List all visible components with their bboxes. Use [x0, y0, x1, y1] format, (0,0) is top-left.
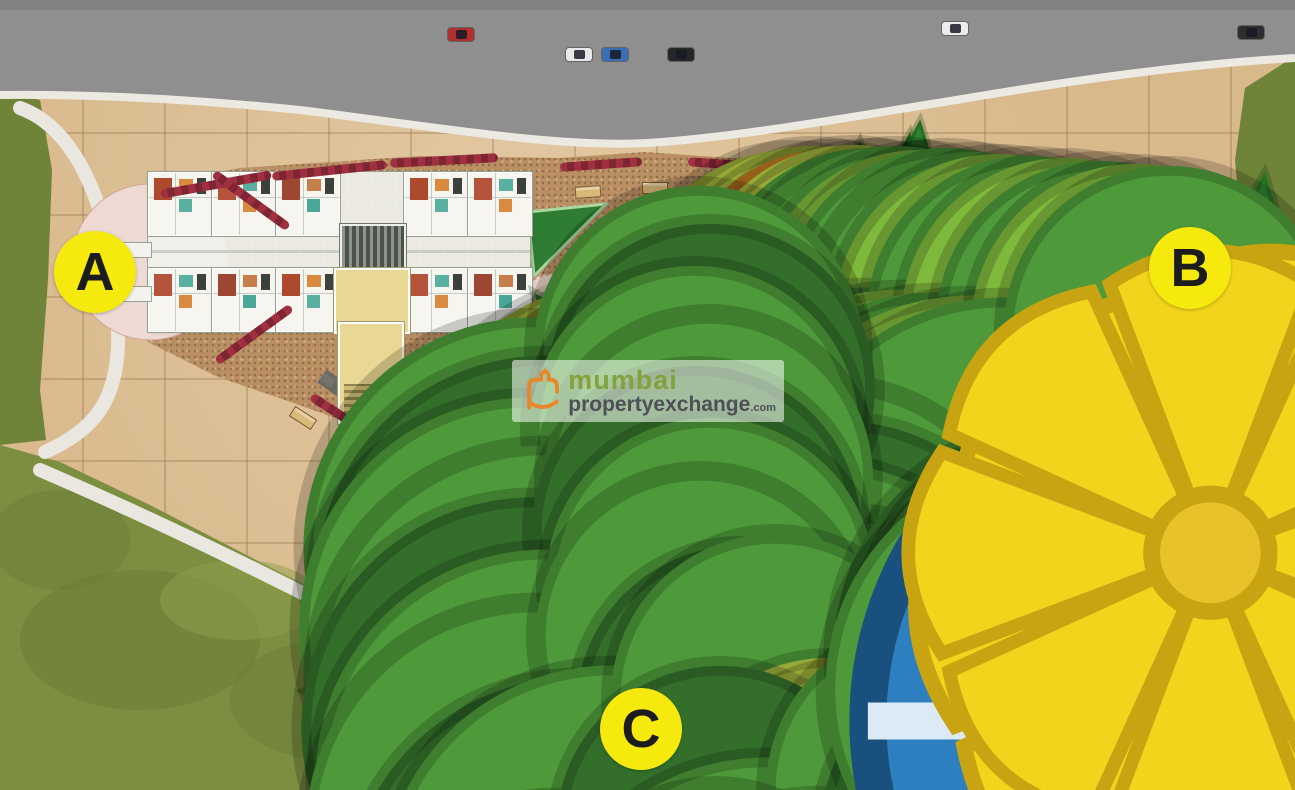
watermark-text: mumbai propertyexchange.com: [568, 366, 776, 416]
wing-a-label: A: [76, 241, 115, 303]
watermark-brand: mumbai: [568, 366, 776, 394]
wing-c-label: C: [622, 698, 661, 760]
site-plan: A B C mumbai propertyexchange.com: [0, 0, 1295, 790]
wing-b-label: B: [1171, 237, 1210, 299]
watermark: mumbai propertyexchange.com: [512, 360, 784, 422]
wing-b-marker: B: [1149, 227, 1231, 309]
watermark-domain: propertyexchange.com: [568, 394, 776, 416]
wing-c-marker: C: [600, 688, 682, 770]
watermark-house-icon: [520, 364, 562, 418]
wing-a-marker: A: [54, 231, 136, 313]
